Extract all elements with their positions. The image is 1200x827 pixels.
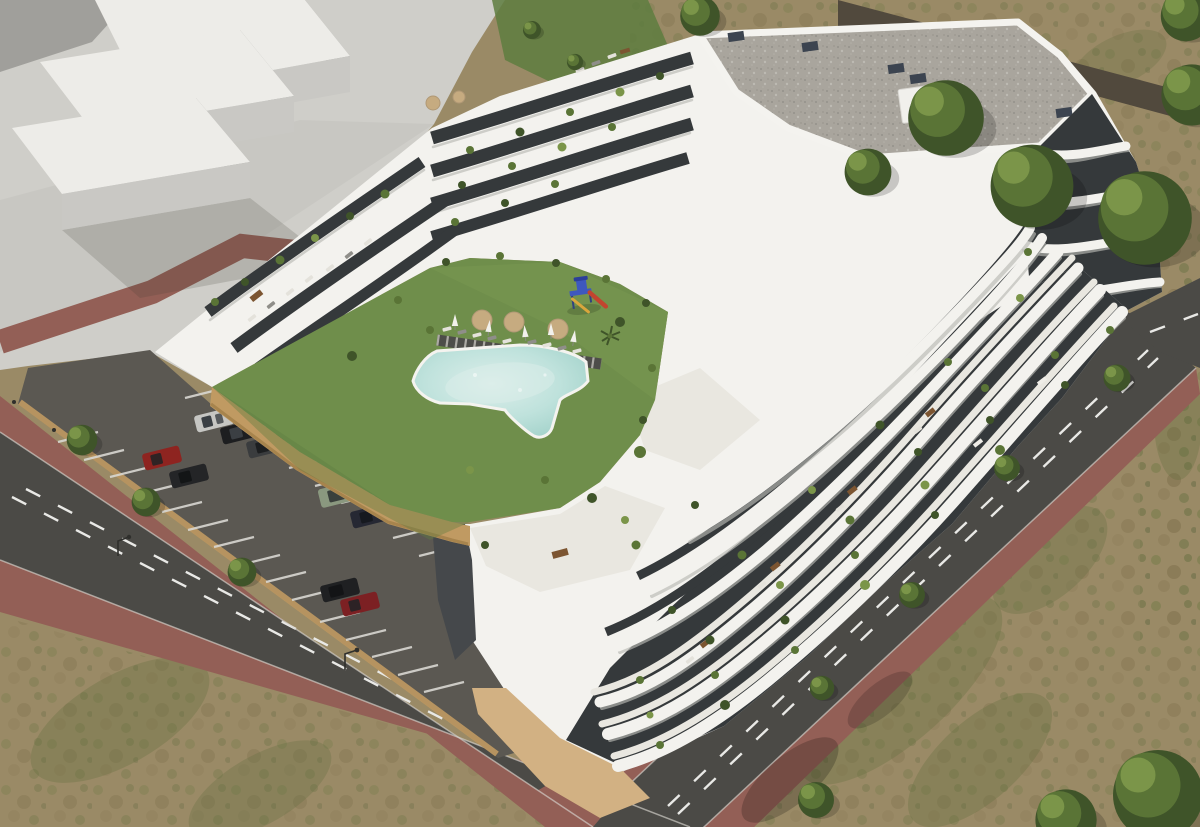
aerial-render: Aerial 3D render of a terraced white apa… xyxy=(0,0,1200,827)
render-viewport: Aerial 3D render of a terraced white apa… xyxy=(0,0,1200,827)
playground-tower xyxy=(576,279,588,294)
